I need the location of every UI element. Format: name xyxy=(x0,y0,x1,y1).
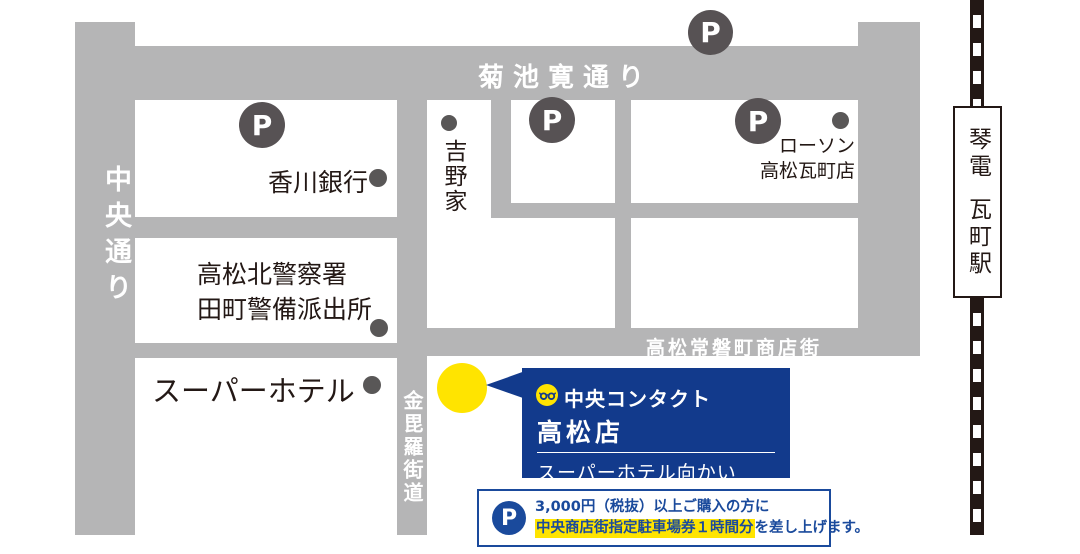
police-line2: 田町警備派出所 xyxy=(197,295,372,324)
parking-letter: P xyxy=(252,109,273,142)
brand-name: 中央コンタクト xyxy=(564,383,711,412)
parking-note-text: 3,000円（税抜）以上ご購入の方に 中央商店街指定駐車場券１時間分を差し上げま… xyxy=(535,497,869,539)
parking-letter: P xyxy=(748,105,769,138)
parking-icon: P xyxy=(239,102,285,148)
parking-note-highlight: 中央商店街指定駐車場券１時間分 xyxy=(535,519,755,538)
label-lawson: ローソン 高松瓦町店 xyxy=(700,134,855,184)
street-center-vertical xyxy=(615,98,631,328)
kawaramachi-station: 琴電 瓦町駅 xyxy=(953,106,1002,298)
yoshinoya-dot xyxy=(441,115,457,131)
street-bank-police-gap xyxy=(135,217,397,238)
brand-logo-circle xyxy=(536,384,558,406)
railway-track-top xyxy=(970,0,984,106)
glasses-icon xyxy=(539,390,556,401)
super-hotel-dot xyxy=(363,376,381,394)
street-middle-arm xyxy=(491,203,858,218)
label-kagawa-bank: 香川銀行 xyxy=(240,163,368,199)
parking-icon: P xyxy=(529,97,575,143)
label-konpira-kaido: 金毘羅街道 xyxy=(397,390,427,505)
station-railway-name: 琴電 xyxy=(961,127,995,181)
parking-note-box: P 3,000円（税抜）以上ご購入の方に 中央商店街指定駐車場券１時間分を差し上… xyxy=(477,489,831,547)
store-name: 高松店 xyxy=(537,413,624,449)
store-callout-box: 中央コンタクト 高松店 スーパーホテル向かい xyxy=(522,368,790,478)
police-dot xyxy=(370,319,388,337)
street-right-vertical xyxy=(858,22,920,356)
label-tokiwacho-shotengai: 高松常磐町商店街 xyxy=(646,333,822,360)
lawson-line2: 高松瓦町店 xyxy=(760,160,855,182)
parking-note-line1: 3,000円（税抜）以上ご購入の方に xyxy=(535,499,769,515)
label-super-hotel: スーパーホテル xyxy=(152,368,355,410)
lawson-dot xyxy=(832,112,849,129)
store-access-map: 中央通り 菊池寛通り 金毘羅街道 高松常磐町商店街 P P P P 香川銀行 吉… xyxy=(0,0,1080,554)
label-chuo-dori: 中央通り xyxy=(75,165,135,309)
label-kikuchikan-dori: 菊池寛通り xyxy=(478,57,653,94)
street-left-arm xyxy=(135,343,397,358)
police-line1: 高松北警察署 xyxy=(197,260,347,289)
parking-note-line2-rest: を差し上げます。 xyxy=(755,520,870,536)
parking-icon: P xyxy=(688,10,733,55)
kagawa-bank-dot xyxy=(369,169,387,187)
railway-track-bottom xyxy=(970,298,984,535)
street-alley-vertical xyxy=(491,98,511,218)
store-location-note: スーパーホテル向かい xyxy=(537,458,737,485)
parking-letter: P xyxy=(542,104,563,137)
callout-pointer xyxy=(486,371,523,398)
lawson-line1: ローソン xyxy=(779,135,855,157)
parking-icon: P xyxy=(492,501,526,535)
store-box-divider xyxy=(537,452,775,453)
parking-letter: P xyxy=(501,506,517,531)
label-yoshinoya: 吉野家 xyxy=(436,139,470,214)
label-police: 高松北警察署 田町警備派出所 xyxy=(197,257,372,327)
parking-letter: P xyxy=(700,16,721,49)
station-name: 瓦町駅 xyxy=(961,197,995,278)
store-location-marker xyxy=(437,363,487,413)
